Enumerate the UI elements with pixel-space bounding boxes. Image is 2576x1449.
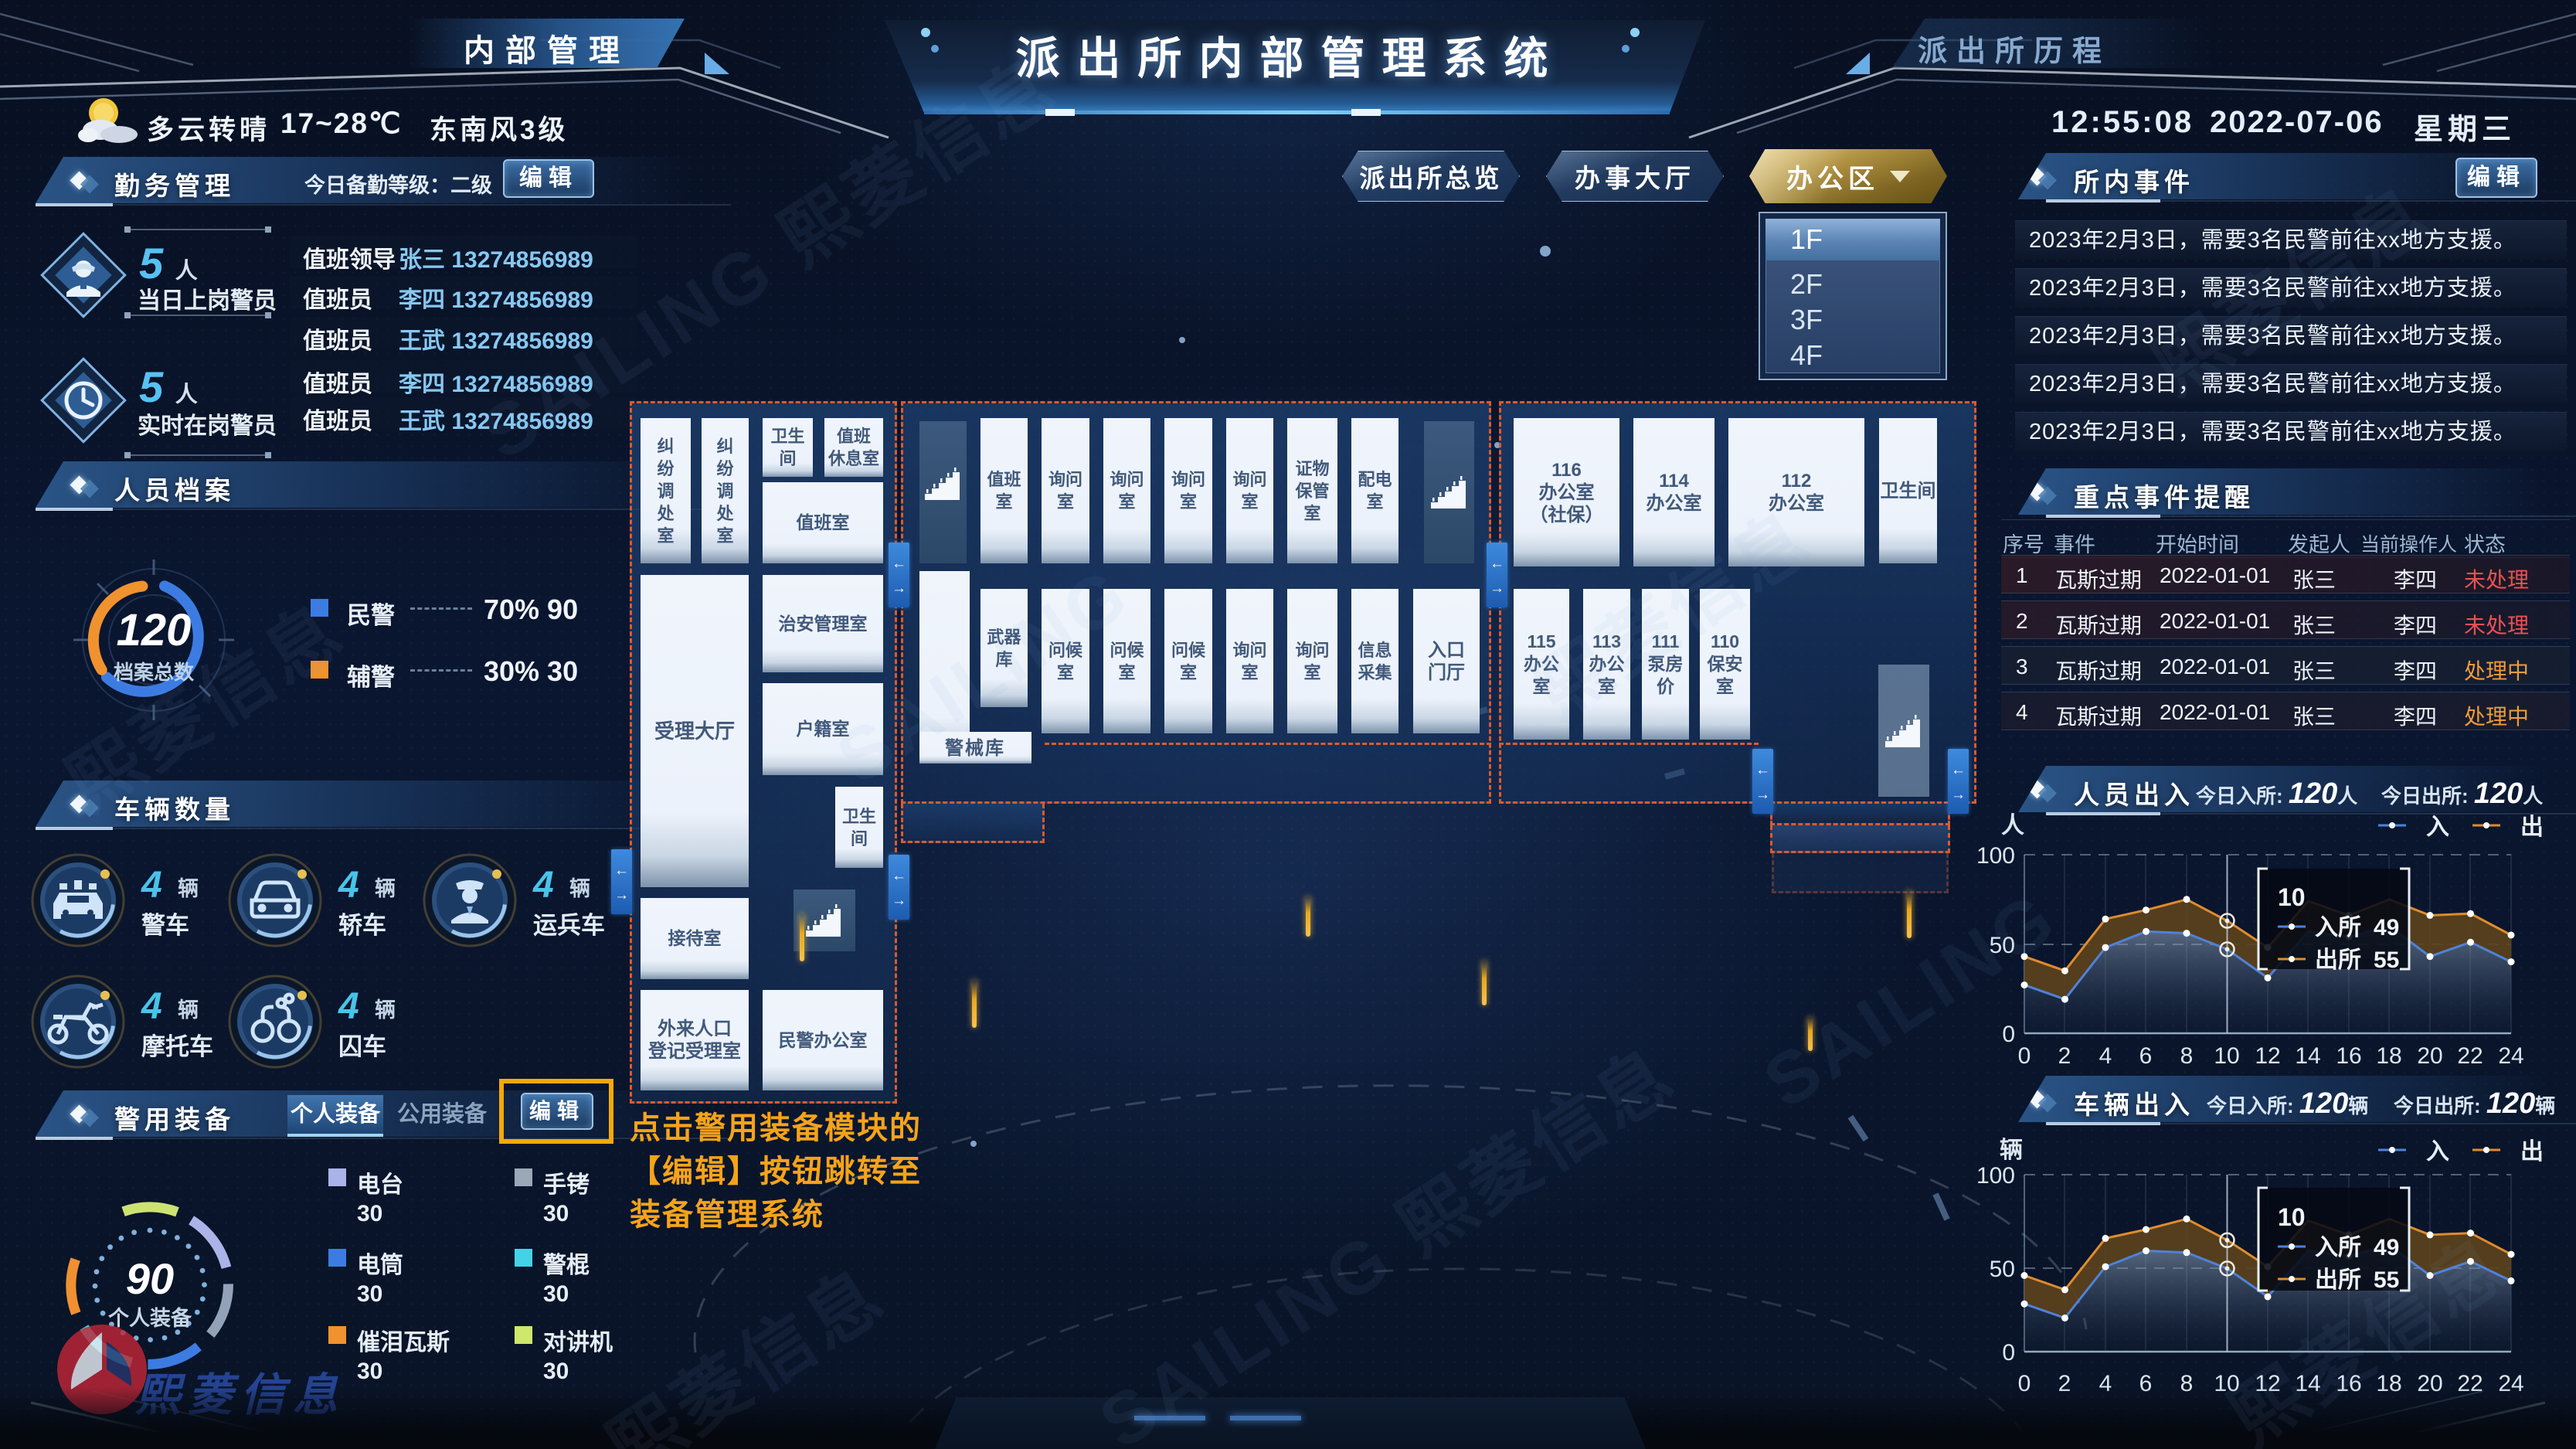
svg-text:100: 100 [1976, 1163, 2015, 1189]
svg-text:8: 8 [2180, 1043, 2194, 1066]
svg-text:人: 人 [2001, 813, 2024, 838]
svg-text:0: 0 [2018, 1043, 2031, 1066]
svg-text:出: 出 [2520, 815, 2544, 840]
svg-text:0: 0 [2002, 1022, 2015, 1047]
svg-text:55: 55 [2374, 947, 2399, 973]
svg-text:出: 出 [2520, 1139, 2544, 1165]
svg-text:14: 14 [2295, 1043, 2320, 1066]
svg-text:入所: 入所 [2315, 915, 2361, 940]
svg-text:22: 22 [2457, 1043, 2483, 1066]
svg-text:10: 10 [2214, 1043, 2239, 1066]
svg-text:辆: 辆 [2000, 1138, 2023, 1163]
svg-text:0: 0 [2002, 1340, 2015, 1366]
svg-text:入所: 入所 [2315, 1235, 2361, 1260]
svg-text:12: 12 [2255, 1043, 2280, 1066]
svg-text:10: 10 [2278, 883, 2306, 911]
svg-text:49: 49 [2374, 915, 2399, 940]
svg-text:100: 100 [1976, 843, 2015, 869]
svg-text:出所: 出所 [2315, 947, 2361, 973]
svg-text:入: 入 [2426, 1139, 2449, 1165]
svg-text:16: 16 [2336, 1043, 2361, 1066]
svg-text:2: 2 [2058, 1043, 2071, 1066]
svg-text:20: 20 [2417, 1043, 2442, 1066]
svg-text:18: 18 [2376, 1043, 2401, 1066]
svg-text:入: 入 [2426, 815, 2449, 840]
svg-text:50: 50 [1990, 1257, 2015, 1282]
svg-text:24: 24 [2498, 1043, 2523, 1066]
svg-text:6: 6 [2139, 1043, 2153, 1066]
svg-text:4: 4 [2099, 1043, 2112, 1066]
svg-text:10: 10 [2278, 1203, 2306, 1231]
